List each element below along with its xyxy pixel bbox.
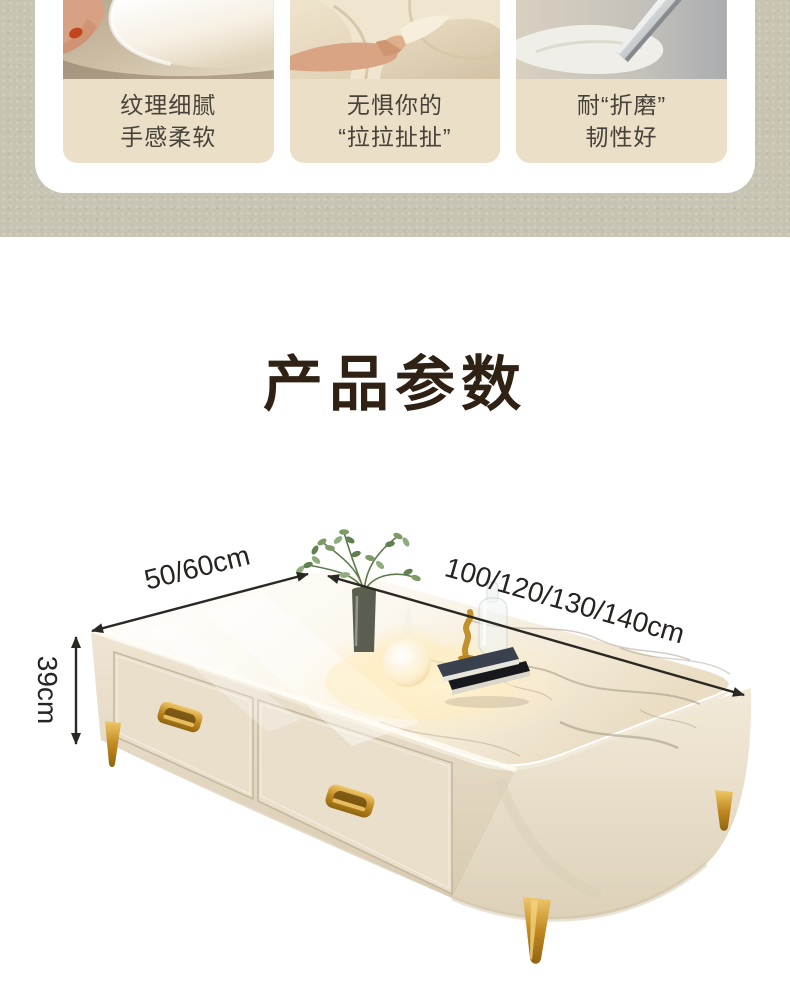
feature-text-line1: 纹理细腻 [120,89,216,121]
feature-item-durable: 耐“折磨” 韧性好 [516,0,727,163]
feature-photo-leather [63,0,274,79]
leather-closeup-illustration [63,0,274,79]
product-detail-page: 纹理细腻 手感柔软 [0,0,790,1000]
height-dimension-label: 39cm [32,656,63,724]
feature-label: 耐“折磨” 韧性好 [516,79,727,163]
feature-item-pull: 无惧你的 “拉拉扯扯” [290,0,501,163]
feature-photo-pulling [290,0,501,79]
features-section: 纹理细腻 手感柔软 [0,0,790,237]
hand-pulling-illustration [290,0,501,79]
feature-text-line2: 韧性好 [585,121,657,153]
section-title: 产品参数 [0,350,790,420]
feature-text-line2: 手感柔软 [120,121,216,153]
feature-item-texture: 纹理细腻 手感柔软 [63,0,274,163]
feature-text-line1: 无惧你的 [347,89,443,121]
feature-text-line2: “拉拉扯扯” [338,121,451,153]
feature-label: 纹理细腻 手感柔软 [63,79,274,163]
coffee-table-illustration: 50/60cm 100/120/130/140cm 39cm [0,470,790,1000]
blade-on-fabric-illustration [516,0,727,79]
depth-dimension-label: 50/60cm [141,539,253,595]
feature-text-line1: 耐“折磨” [577,89,666,121]
feature-label: 无惧你的 “拉拉扯扯” [290,79,501,163]
features-card: 纹理细腻 手感柔软 [35,0,755,193]
product-figure: 50/60cm 100/120/130/140cm 39cm [0,470,790,1000]
feature-photo-blade [516,0,727,79]
